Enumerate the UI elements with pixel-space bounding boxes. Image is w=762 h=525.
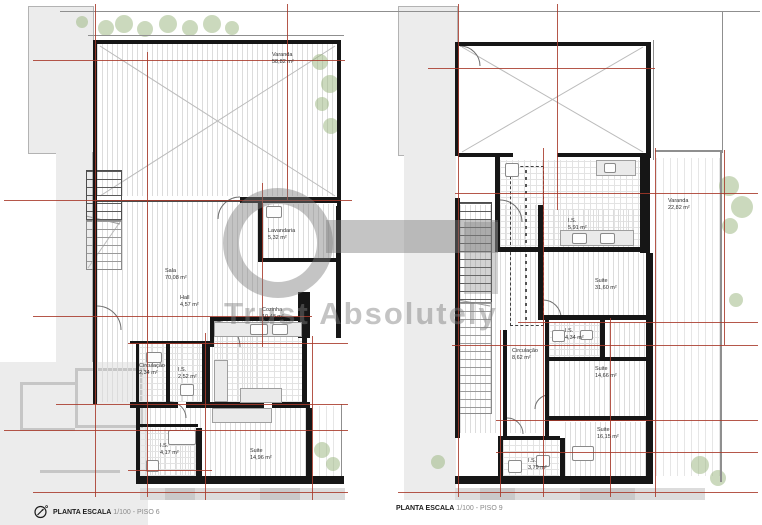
wall-segment	[166, 344, 170, 402]
room-area: 4,17 m²	[160, 450, 179, 457]
sink-icon	[604, 163, 616, 173]
room-label-suite: Suite 14,96 m²	[250, 448, 272, 462]
room-name: Hall	[180, 295, 199, 302]
watermark-logo-icon	[223, 188, 333, 298]
room-label-hall: Hall 4,57 m²	[180, 295, 199, 309]
dimension-line	[398, 492, 758, 493]
room-label-suite2: Suite 14,66 m²	[595, 366, 617, 380]
footer-piso6: PLANTA ESCALA 1/100 - PISO 6	[34, 505, 160, 519]
balcony-edge-line	[720, 150, 722, 482]
floor-plan-sheet: Varanda 58,82 m² Lavandaria 5,32 m² Sala…	[0, 0, 762, 525]
wall-segment	[455, 476, 653, 484]
wall-segment	[302, 321, 307, 404]
room-name: Sala	[165, 268, 187, 275]
room-label-is: I.S. 2,52 m²	[178, 367, 197, 381]
room-area: 4,34 m²	[565, 335, 584, 342]
room-area: 2,34 m²	[139, 370, 165, 377]
parapet-line	[88, 35, 344, 36]
dimension-line	[557, 4, 558, 210]
staircase-dashed	[86, 220, 122, 270]
room-name: I.S.	[160, 443, 179, 450]
room-name: Suite	[250, 448, 272, 455]
staircase	[86, 170, 122, 222]
wall-segment	[136, 408, 140, 478]
dimension-line	[128, 470, 212, 471]
room-name: Suite	[595, 278, 617, 285]
room-label-varanda: Varanda 22,82 m²	[668, 198, 690, 212]
dimension-line	[95, 4, 96, 497]
wall-segment	[202, 344, 210, 402]
wall-segment	[498, 436, 560, 440]
kitchen-counter	[214, 360, 228, 402]
dimension-line	[128, 343, 348, 344]
room-name: Circulação	[139, 363, 165, 370]
washbasin-icon	[146, 352, 162, 363]
room-area: 22,82 m²	[668, 205, 690, 212]
room-area: 3,79 m²	[528, 465, 547, 472]
wall-segment	[196, 428, 202, 476]
room-area: 31,60 m²	[595, 285, 617, 292]
footer-piso9: PLANTA ESCALA 1/100 - PISO 9	[396, 505, 503, 512]
watermark-text: Trust Absolutely	[224, 296, 498, 332]
room-name: Varanda	[668, 198, 690, 205]
wall-pier	[640, 155, 650, 253]
dimension-line	[56, 404, 348, 405]
room-label-circulacao: Circulação 2,34 m²	[139, 363, 165, 377]
site-boundary-line	[722, 11, 723, 153]
room-label-sala: Sala 70,08 m²	[165, 268, 187, 282]
wall-segment	[538, 315, 653, 320]
site-boundary-line	[60, 11, 760, 12]
washbasin-icon	[572, 233, 587, 244]
toilet-icon	[552, 330, 565, 342]
north-arrow-icon	[34, 505, 48, 519]
wall-segment	[455, 42, 651, 46]
footer-title: PLANTA ESCALA	[396, 505, 454, 512]
wardrobe	[212, 408, 272, 423]
room-area: 14,66 m²	[595, 373, 617, 380]
dimension-line	[287, 4, 288, 200]
room-area: 4,57 m²	[180, 302, 199, 309]
room-area: 8,62 m²	[512, 355, 538, 362]
wall-segment	[557, 153, 649, 157]
wall-segment	[458, 153, 513, 157]
dimension-line	[724, 150, 725, 345]
room-area: 70,08 m²	[165, 275, 187, 282]
room-label-is2: I.S. 3,79 m²	[528, 458, 547, 472]
room-name: I.S.	[178, 367, 197, 374]
room-name: Varanda	[272, 52, 294, 59]
bathtub-icon	[572, 446, 594, 461]
dimension-line	[455, 193, 758, 194]
room-name: I.S.	[528, 458, 547, 465]
room-area: 5,91 m²	[568, 225, 587, 232]
wall-segment	[600, 320, 605, 358]
dimension-line	[500, 330, 501, 497]
room-name: Suite	[595, 366, 617, 373]
balcony-edge-line	[341, 404, 342, 480]
room-name: Suite	[597, 427, 619, 434]
dimension-line	[4, 430, 348, 431]
footer-scale: 1/100 - PISO 6	[113, 509, 159, 516]
room-label-suite: Suite 31,60 m²	[595, 278, 617, 292]
dimension-line	[496, 452, 758, 453]
room-label-varanda: Varanda 58,82 m²	[272, 52, 294, 66]
room-area: 16,15 m²	[597, 434, 619, 441]
dimension-line	[33, 492, 348, 493]
room-label-is: I.S. 4,34 m²	[565, 328, 584, 342]
wall-segment	[646, 42, 651, 158]
toilet-icon	[180, 384, 194, 396]
room-area: 58,82 m²	[272, 59, 294, 66]
bathroom-cabinet	[596, 160, 636, 176]
room-label-suite3: Suite 16,15 m²	[597, 427, 619, 441]
wall-segment	[337, 40, 341, 206]
dimension-line	[428, 68, 655, 69]
room-area: 14,96 m²	[250, 455, 272, 462]
facade-line	[653, 40, 654, 160]
room-label-is2: I.S. 4,17 m²	[160, 443, 179, 457]
dimension-line	[452, 345, 758, 346]
washbasin-icon	[508, 460, 522, 473]
balcony-edge-line	[655, 150, 721, 152]
washbasin-icon	[600, 233, 615, 244]
room-name: I.S.	[568, 218, 587, 225]
dimension-line	[33, 60, 345, 61]
wall-segment	[136, 424, 198, 427]
room-label-circulacao: Circulação 8,62 m²	[512, 348, 538, 362]
dimension-line	[205, 333, 206, 500]
room-area: 2,52 m²	[178, 374, 197, 381]
footer-title: PLANTA ESCALA	[53, 509, 111, 516]
wall-segment	[93, 40, 341, 44]
room-name: Circulação	[512, 348, 538, 355]
room-name: I.S.	[565, 328, 584, 335]
footer-scale: 1/100 - PISO 9	[456, 505, 502, 512]
dimension-line	[518, 322, 758, 323]
wall-segment	[495, 247, 647, 252]
kitchen-counter	[240, 388, 282, 403]
dimension-line	[496, 420, 758, 421]
wall-segment	[560, 438, 565, 480]
room-label-is: I.S. 5,91 m²	[568, 218, 587, 232]
watermark-logo-fragment	[464, 222, 498, 294]
dimension-line	[312, 336, 313, 500]
wall-segment	[545, 357, 653, 361]
wall-segment	[646, 253, 653, 483]
toilet-icon	[505, 163, 519, 177]
